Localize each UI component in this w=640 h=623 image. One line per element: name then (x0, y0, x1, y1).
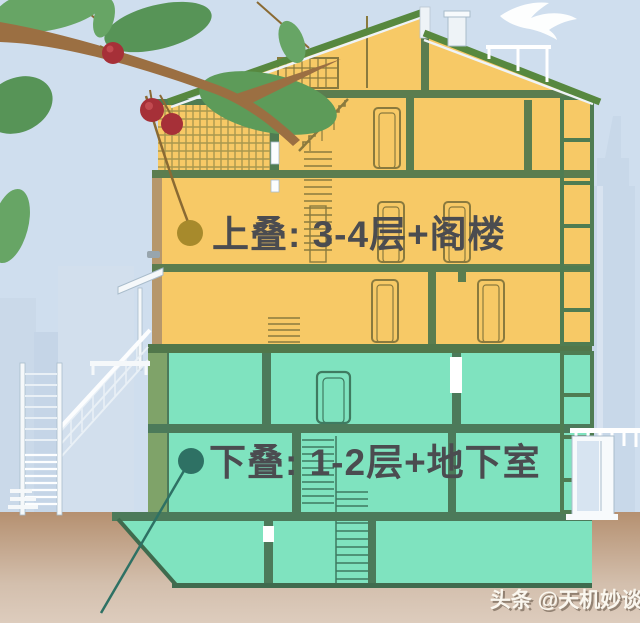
garden-fence-bar (570, 428, 640, 433)
chimney-cap (444, 11, 470, 17)
berry (140, 98, 164, 122)
lower-label-text: 下叠: 1-2层+地下室 (209, 441, 541, 483)
chimney-stack (448, 16, 466, 46)
watermark-text: 头条 @天机妙谈 (490, 588, 640, 612)
illustration-stacked-villa: 上叠: 3-4层+阁楼 下叠: 1-2层+地下室 头条 @天机妙谈 头条 @天机… (0, 0, 640, 623)
basement-wall (368, 521, 376, 583)
unit-boundary-slab (148, 344, 592, 353)
tower-rail (57, 363, 62, 515)
lower-label-dot (178, 448, 204, 474)
corner-post-white-panel (271, 180, 279, 192)
open-doorway (263, 526, 274, 542)
attic-step-wall (421, 36, 429, 92)
berry (102, 42, 124, 64)
building-cross-section (112, 7, 640, 588)
step (10, 489, 32, 493)
floor-slab (152, 170, 592, 178)
walkway-rail (90, 361, 150, 366)
upper-label-dot (177, 220, 203, 246)
interior-wall (524, 100, 532, 172)
chimney (444, 11, 470, 46)
step (10, 497, 36, 501)
scene-canvas: 上叠: 3-4层+阁楼 下叠: 1-2层+地下室 头条 @天机妙谈 头条 @天机… (0, 0, 640, 623)
skyline-building (34, 332, 60, 514)
open-doorway (450, 357, 462, 393)
corner-post-white-panel (271, 142, 279, 164)
canopy-bracket (147, 251, 160, 258)
berry-highlight (107, 46, 114, 53)
upper-label-text: 上叠: 3-4层+阁楼 (212, 213, 506, 255)
basement-bottom-edge (172, 583, 592, 588)
interior-wall (406, 98, 414, 172)
interior-wall (262, 353, 271, 424)
basement-body (118, 520, 592, 586)
berry-highlight (145, 102, 153, 110)
watermark: 头条 @天机妙谈 头条 @天机妙谈 (490, 588, 640, 614)
left-cut-wall (152, 172, 162, 346)
ground-level-slab (112, 512, 592, 521)
step (8, 505, 38, 509)
berry (161, 113, 183, 135)
floor-slab (152, 264, 592, 272)
floor-slab (148, 424, 592, 433)
interior-wall (428, 272, 436, 346)
entrance-door-glass (577, 441, 599, 511)
entrance-sill (566, 514, 618, 520)
